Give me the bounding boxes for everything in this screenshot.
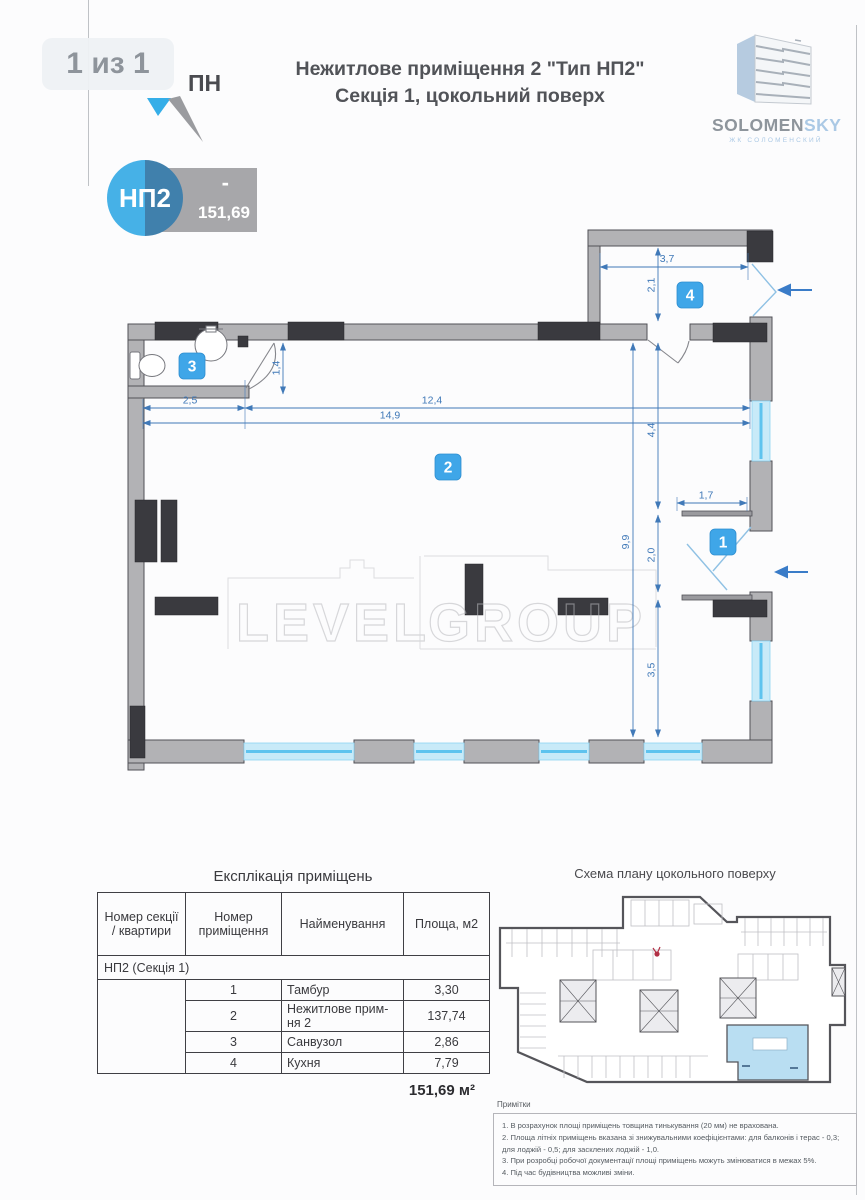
notes-title: Примітки — [497, 1100, 857, 1109]
notes-section: Примітки 1. В розрахунок площі приміщень… — [493, 1100, 857, 1186]
dim-kitchen-width: 3,7 — [660, 253, 675, 265]
note-item: 4. Під час будівництва можливі зміни. — [502, 1167, 848, 1179]
dim-kitchen-depth: 2,1 — [646, 278, 658, 293]
room-name-cell: Тамбур — [282, 980, 404, 1001]
scheme-title: Схема плану цокольного поверху — [495, 866, 855, 881]
page-edge-line-right — [856, 25, 857, 1195]
north-arrow-icon — [140, 92, 210, 147]
room-number-cell: 2 — [186, 1001, 282, 1032]
explication-section: Експлікація приміщень Номер секції / ква… — [97, 868, 489, 1099]
title-line-2: Секція 1, цокольний поверх — [250, 83, 690, 110]
room-badge-bathroom: 3 — [188, 359, 197, 376]
note-item: 1. В розрахунок площі приміщень товщина … — [502, 1120, 848, 1132]
room-area-cell: 137,74 — [404, 1001, 490, 1032]
room-badge-main: 2 — [444, 460, 453, 477]
room-badge-tambour: 1 — [719, 535, 728, 552]
page-fold-line-top-left — [88, 0, 89, 186]
floor-scheme-map — [498, 888, 850, 1094]
watermark-word-left: LEVEL — [236, 593, 430, 653]
room-area-cell: 3,30 — [404, 980, 490, 1001]
entrance-arrows — [774, 284, 812, 579]
room-name-cell: Нежитлове прим-ня 2 — [282, 1001, 404, 1032]
col-header-area: Площа, м2 — [404, 893, 490, 956]
dimension-lines: 3,7 2,5 12,4 14,9 1,7 2,1 1,4 4,4 2,0 3,… — [143, 248, 750, 737]
brand-name: SOLOMENSKY — [712, 115, 840, 136]
brand-blue: SKY — [804, 115, 841, 135]
main-floor-plan: LEVEL GROUP — [95, 218, 819, 780]
dim-total-width: 14,9 — [380, 410, 401, 422]
developer-logo: SOLOMENSKY ЖК СОЛОМЕНСКИЙ — [712, 28, 840, 144]
room-name-cell: Кухня — [282, 1053, 404, 1074]
room-number-cell: 1 — [186, 980, 282, 1001]
watermark-word-right: GROUP — [428, 593, 646, 653]
col-header-room-number: Номер приміщення — [186, 893, 282, 956]
dim-upper-depth: 4,4 — [646, 423, 658, 438]
table-row: 1 Тамбур 3,30 — [98, 980, 490, 1001]
room-number-cell: 3 — [186, 1032, 282, 1053]
dim-main-width: 12,4 — [422, 395, 443, 407]
room-area-cell: 7,79 — [404, 1053, 490, 1074]
room-area-cell: 2,86 — [404, 1032, 490, 1053]
dim-tambour-width: 1,7 — [699, 490, 714, 502]
explication-table: Номер секції / квартири Номер приміщення… — [97, 892, 490, 1074]
note-item: 2. Площа літніх приміщень вказана зі зни… — [502, 1132, 848, 1156]
title-line-1: Нежитлове приміщення 2 "Тип НП2" — [250, 56, 690, 83]
highlighted-unit — [727, 1025, 808, 1080]
entrance-arrow-icon-kitchen — [777, 284, 791, 297]
group-row-label: НП2 (Секція 1) — [98, 956, 490, 980]
walls — [128, 230, 772, 770]
dim-tambour-depth: 2,0 — [646, 548, 658, 563]
notes-box: 1. В розрахунок площі приміщень товщина … — [493, 1113, 857, 1186]
table-group-row: НП2 (Секція 1) — [98, 956, 490, 980]
kitchen-entry-door — [752, 264, 776, 316]
building-logo-icon — [731, 28, 821, 108]
room-number-cell: 4 — [186, 1053, 282, 1074]
explication-title: Експлікація приміщень — [97, 868, 489, 885]
unit-floor-dash: - — [222, 170, 229, 196]
dim-total-depth: 9,9 — [620, 535, 632, 550]
level-group-watermark: LEVEL GROUP — [228, 556, 656, 653]
entrance-arrow-icon-tambour — [774, 566, 788, 579]
col-header-section: Номер секції / квартири — [98, 893, 186, 956]
unit-label-box — [753, 1038, 787, 1050]
dim-bathroom-depth: 1,4 — [271, 361, 283, 376]
room-number-badges: 1 2 3 4 — [179, 282, 736, 555]
page-title: Нежитлове приміщення 2 "Тип НП2" Секція … — [250, 56, 690, 111]
col-header-name: Найменування — [282, 893, 404, 956]
table-header-row: Номер секції / квартири Номер приміщення… — [98, 893, 490, 956]
note-item: 3. При розробці робочої документації пло… — [502, 1155, 848, 1167]
windows — [244, 401, 770, 760]
dim-bathroom-width: 2,5 — [183, 395, 198, 407]
total-area-value: 151,69 м² — [97, 1082, 489, 1099]
brand-subtitle: ЖК СОЛОМЕНСКИЙ — [712, 137, 840, 144]
room-name-cell: Санвузол — [282, 1032, 404, 1053]
dim-lower-depth: 3,5 — [646, 663, 658, 678]
page-counter-badge: 1 из 1 — [42, 38, 174, 90]
brand-gray: SOLOMEN — [712, 115, 804, 135]
floor-plan-page: 1 из 1 ПН Нежитлове приміщення 2 "Тип НП… — [0, 0, 865, 1200]
section-cell-empty — [98, 980, 186, 1074]
room-badge-kitchen: 4 — [686, 288, 695, 305]
doors — [246, 264, 776, 590]
structural-columns — [130, 231, 773, 758]
